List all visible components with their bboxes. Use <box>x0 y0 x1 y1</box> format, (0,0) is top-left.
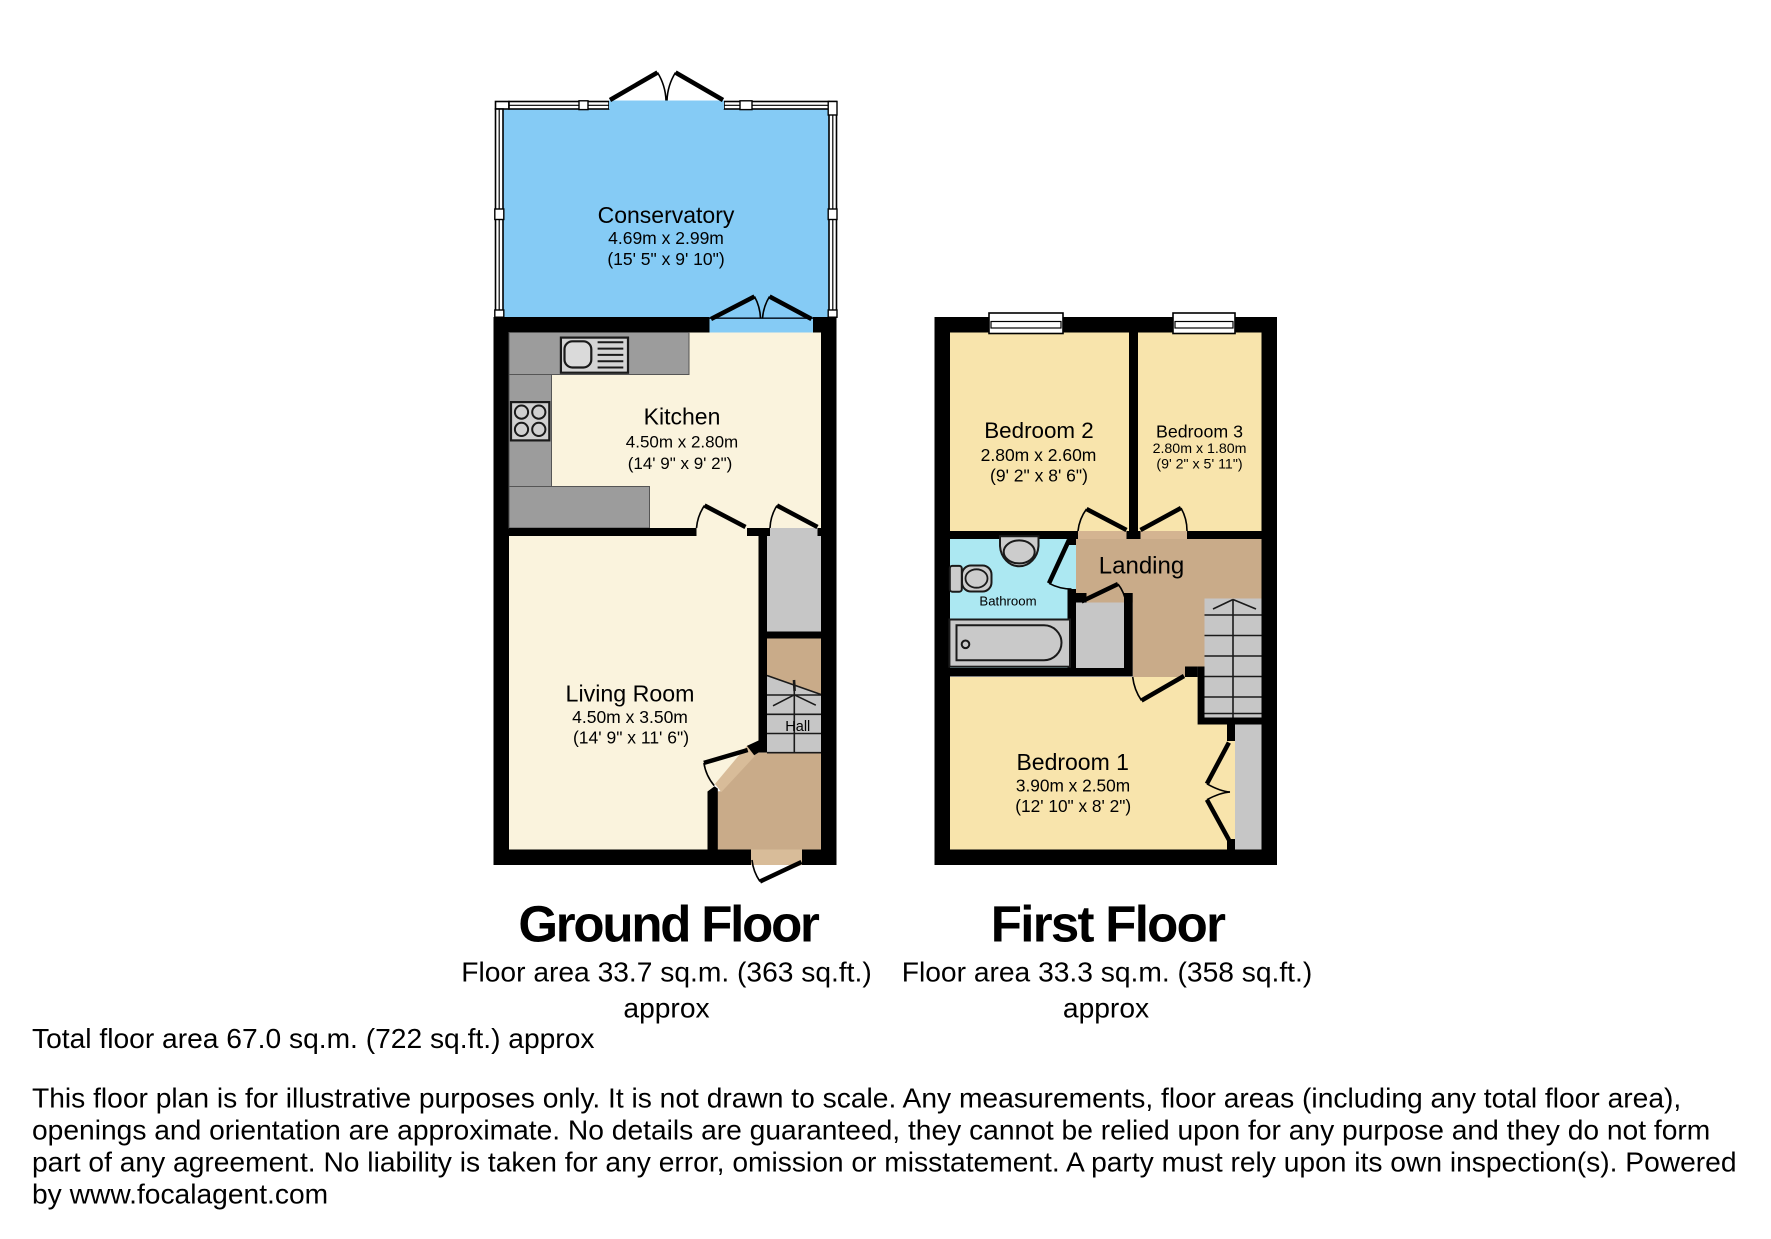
svg-text:Kitchen: Kitchen <box>644 404 721 430</box>
svg-text:by www.focalagent.com: by www.focalagent.com <box>32 1177 328 1209</box>
svg-text:Floor area 33.3 sq.m. (358 sq.: Floor area 33.3 sq.m. (358 sq.ft.) <box>902 956 1312 988</box>
svg-text:part of any agreement. No liab: part of any agreement. No liability is t… <box>32 1145 1737 1177</box>
svg-text:Floor area 33.7 sq.m. (363 sq.: Floor area 33.7 sq.m. (363 sq.ft.) <box>461 956 871 988</box>
svg-text:(14' 9" x 11' 6"): (14' 9" x 11' 6") <box>573 728 689 748</box>
svg-text:4.50m x 2.80m: 4.50m x 2.80m <box>626 433 738 452</box>
svg-text:2.80m x 1.80m: 2.80m x 1.80m <box>1153 441 1247 457</box>
svg-text:(9' 2" x 5' 11"): (9' 2" x 5' 11") <box>1156 457 1242 473</box>
svg-text:approx: approx <box>1063 992 1149 1024</box>
svg-text:4.50m x 3.50m: 4.50m x 3.50m <box>572 707 688 727</box>
svg-text:Ground Floor: Ground Floor <box>518 896 820 953</box>
svg-text:openings and orientation are a: openings and orientation are approximate… <box>32 1113 1710 1145</box>
svg-text:3.90m x 2.50m: 3.90m x 2.50m <box>1016 775 1130 795</box>
svg-text:(9' 2" x 8' 6"): (9' 2" x 8' 6") <box>990 466 1088 486</box>
svg-text:First Floor: First Floor <box>991 896 1226 953</box>
svg-text:Hall: Hall <box>785 719 810 735</box>
svg-text:(15' 5" x 9' 10"): (15' 5" x 9' 10") <box>607 249 724 269</box>
svg-text:Living Room: Living Room <box>566 681 695 707</box>
svg-text:Landing: Landing <box>1099 553 1184 580</box>
svg-text:Total floor area 67.0 sq.m. (7: Total floor area 67.0 sq.m. (722 sq.ft.)… <box>32 1022 594 1054</box>
svg-text:approx: approx <box>623 992 709 1024</box>
svg-text:This floor plan is for illustr: This floor plan is for illustrative purp… <box>32 1081 1681 1113</box>
svg-text:4.69m x 2.99m: 4.69m x 2.99m <box>608 228 724 248</box>
svg-text:Conservatory: Conservatory <box>598 202 735 228</box>
svg-text:Bedroom 2: Bedroom 2 <box>984 418 1094 443</box>
svg-text:Bedroom 1: Bedroom 1 <box>1016 749 1129 775</box>
svg-text:2.80m x 2.60m: 2.80m x 2.60m <box>981 445 1097 465</box>
svg-text:(14' 9" x 9' 2"): (14' 9" x 9' 2") <box>628 454 733 473</box>
svg-text:Bedroom 3: Bedroom 3 <box>1156 422 1243 442</box>
svg-text:(12' 10" x 8' 2"): (12' 10" x 8' 2") <box>1015 796 1131 816</box>
svg-text:Bathroom: Bathroom <box>979 594 1036 609</box>
